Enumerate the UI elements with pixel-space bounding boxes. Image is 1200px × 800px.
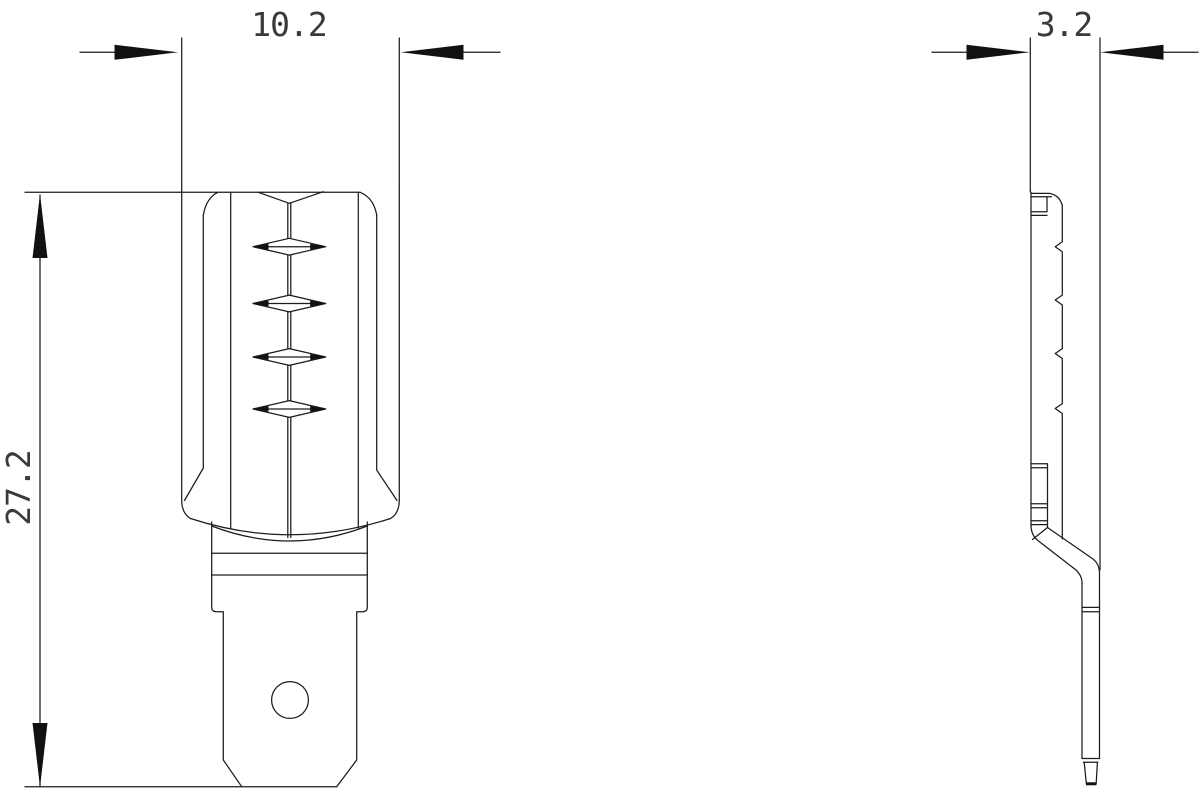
arrowhead-right-pointing-icon [967, 45, 1030, 60]
front-outer-right [391, 192, 400, 518]
pin-tip-sides [1084, 762, 1097, 783]
front-chamfer-right [360, 192, 377, 215]
knurl-diamond-3 [253, 349, 326, 366]
side-inner-bend-and-pin-right [1048, 528, 1100, 759]
arrowhead-left-pointing-icon [401, 45, 464, 60]
front-center-v [258, 192, 323, 204]
side-cross-lines [1031, 464, 1048, 525]
dimension-label-height: 27.2 [0, 450, 38, 525]
drawing-canvas: 10.2 27.2 3.2 [0, 0, 1200, 800]
knurl-diamond-2 [253, 295, 326, 312]
stem-right-edge [337, 522, 368, 787]
arrowhead-right-pointing-icon [115, 45, 179, 60]
technical-drawing-svg: 10.2 27.2 3.2 [0, 0, 1200, 800]
front-chamfer-left [203, 192, 218, 215]
front-center-seam [288, 203, 291, 537]
side-bend-chamfer [1033, 528, 1048, 540]
front-view [25, 192, 399, 787]
front-inner-left [185, 215, 204, 501]
front-outer-left [182, 192, 191, 518]
arrowhead-up-pointing-icon [33, 194, 48, 258]
front-rim-lower-arc [212, 526, 368, 541]
knurl-diamond-1 [253, 238, 326, 255]
side-right-edge-notched [1055, 206, 1062, 540]
side-view [1031, 192, 1100, 784]
side-left-edge-and-bend [1031, 192, 1082, 758]
dimension-width-top: 10.2 [80, 5, 500, 192]
stem-hole [272, 682, 309, 719]
front-inner-right [377, 215, 397, 501]
pin-step-lines [1082, 607, 1100, 762]
knurl-diamond-4 [253, 401, 326, 418]
dimension-label-thickness: 3.2 [1036, 5, 1093, 44]
side-top-cap [1031, 193, 1062, 215]
stem-left-edge [212, 522, 242, 787]
arrowhead-left-pointing-icon [1100, 45, 1163, 60]
arrowhead-down-pointing-icon [33, 723, 48, 787]
dimension-height-left: 27.2 [0, 194, 48, 787]
dimension-label-width: 10.2 [251, 5, 326, 44]
dimension-thickness-side: 3.2 [932, 5, 1198, 570]
